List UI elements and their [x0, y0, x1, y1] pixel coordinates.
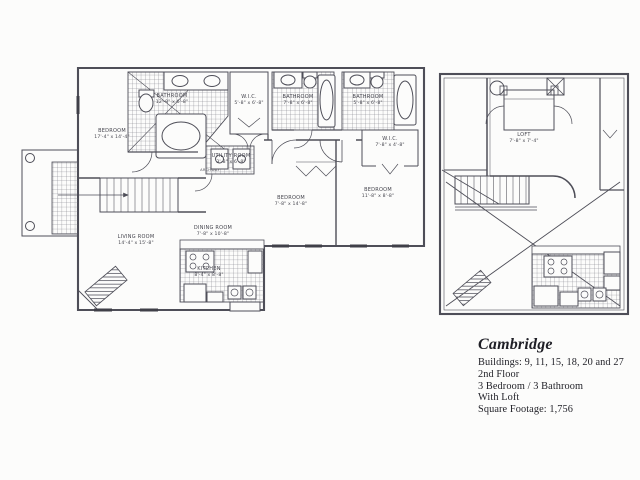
door-arc [554, 106, 572, 124]
sofa-icon [85, 266, 127, 306]
kitchen-below [532, 246, 620, 308]
info-buildings: Buildings: 9, 11, 15, 18, 20 and 27 [478, 357, 640, 369]
sink-icon [204, 76, 220, 87]
stove-icon [544, 256, 572, 277]
label-wic1: W.I.C. 5'-8" x 6'-8" [234, 94, 263, 106]
toilet-icon [371, 76, 383, 88]
label-archway: ARCHWAY [200, 168, 220, 172]
sofa-icon [453, 270, 491, 305]
door-arc [486, 106, 504, 124]
cabinet [207, 292, 223, 302]
door-arc [294, 130, 312, 148]
counter [180, 240, 264, 249]
refrigerator-icon [248, 251, 262, 273]
label-wic2: W.I.C. 7'-8" x 4'-8" [375, 136, 404, 148]
porch-post-icon [26, 222, 35, 231]
label-bath3: BATHROOM 5'-8" x 6'-8" [353, 94, 384, 106]
door-arc [195, 174, 212, 191]
vanity-counter [274, 72, 302, 88]
plan-info-panel: Cambridge Buildings: 9, 11, 15, 18, 20 a… [478, 336, 640, 416]
label-bedroom2: BEDROOM 7'-8" x 14'-8" [275, 195, 307, 207]
label-bedroom3: BEDROOM 11'-8" x 8'-8" [362, 187, 394, 199]
toilet-icon [304, 76, 316, 88]
closet-rod-chevron [603, 130, 617, 138]
door-arc [320, 140, 342, 162]
plan-title: Cambridge [478, 336, 640, 354]
closet-rod-chevron [316, 166, 336, 176]
counter-bump [230, 302, 260, 311]
walk-in-closet-1 [230, 72, 268, 149]
bathtub-icon [318, 75, 335, 127]
floorplan-page: BEDROOM 17'-4" x 14'-4" BATHROOM 12'-8" … [0, 0, 640, 480]
label-bath2: BATHROOM 7'-8" x 6'-8" [283, 94, 314, 106]
cabinet [560, 292, 578, 306]
staircase-loft [455, 176, 537, 210]
bathroom-2 [272, 72, 342, 148]
stair-rail [455, 207, 537, 210]
label-master-bedroom: BEDROOM 17'-4" x 14'-4" [94, 128, 130, 140]
toilet-icon [490, 81, 504, 95]
kitchen-sink-icon [243, 286, 256, 299]
kitchen-sink-icon [593, 288, 606, 301]
skylight-icon [547, 78, 564, 95]
vanity-counter [344, 72, 370, 88]
info-bed-bath: 3 Bedroom / 3 Bathroom [478, 381, 640, 393]
info-loft: With Loft [478, 392, 640, 404]
door-arc [132, 152, 152, 172]
porch-post-icon [26, 154, 35, 163]
loft-closet [600, 78, 624, 190]
info-square-footage: Square Footage: 1,756 [478, 404, 640, 416]
label-loft: LOFT 7'-8" x 7'-4" [509, 132, 538, 144]
label-dining-room: DINING ROOM 7'-8" x 10'-8" [194, 225, 232, 237]
kitchen-sink-icon [228, 286, 241, 299]
label-master-bath: BATHROOM 12'-8" x 6'-8" [156, 93, 188, 105]
closet-rod-chevron [296, 166, 316, 176]
loft-floorplan [440, 74, 628, 314]
info-floor: 2nd Floor [478, 369, 640, 381]
counter [604, 252, 620, 274]
entry-stair-hatch [52, 162, 78, 234]
door-arc [272, 140, 296, 164]
curved-wall [553, 176, 575, 198]
bedroom-walls [264, 134, 362, 246]
toilet-icon [139, 94, 153, 112]
label-kitchen: KITCHEN 8'-4" x 8'-8" [194, 266, 223, 278]
sink-icon [172, 76, 188, 87]
kitchen-sink-icon [578, 288, 591, 301]
entry-porch [22, 150, 78, 236]
cabinet [534, 286, 558, 306]
cabinet [184, 284, 206, 302]
label-utility: UTILITY ROOM 3'-8" x 6'-8" [212, 153, 251, 165]
label-living-room: LIVING ROOM 14'-4" x 15'-8" [118, 234, 155, 246]
